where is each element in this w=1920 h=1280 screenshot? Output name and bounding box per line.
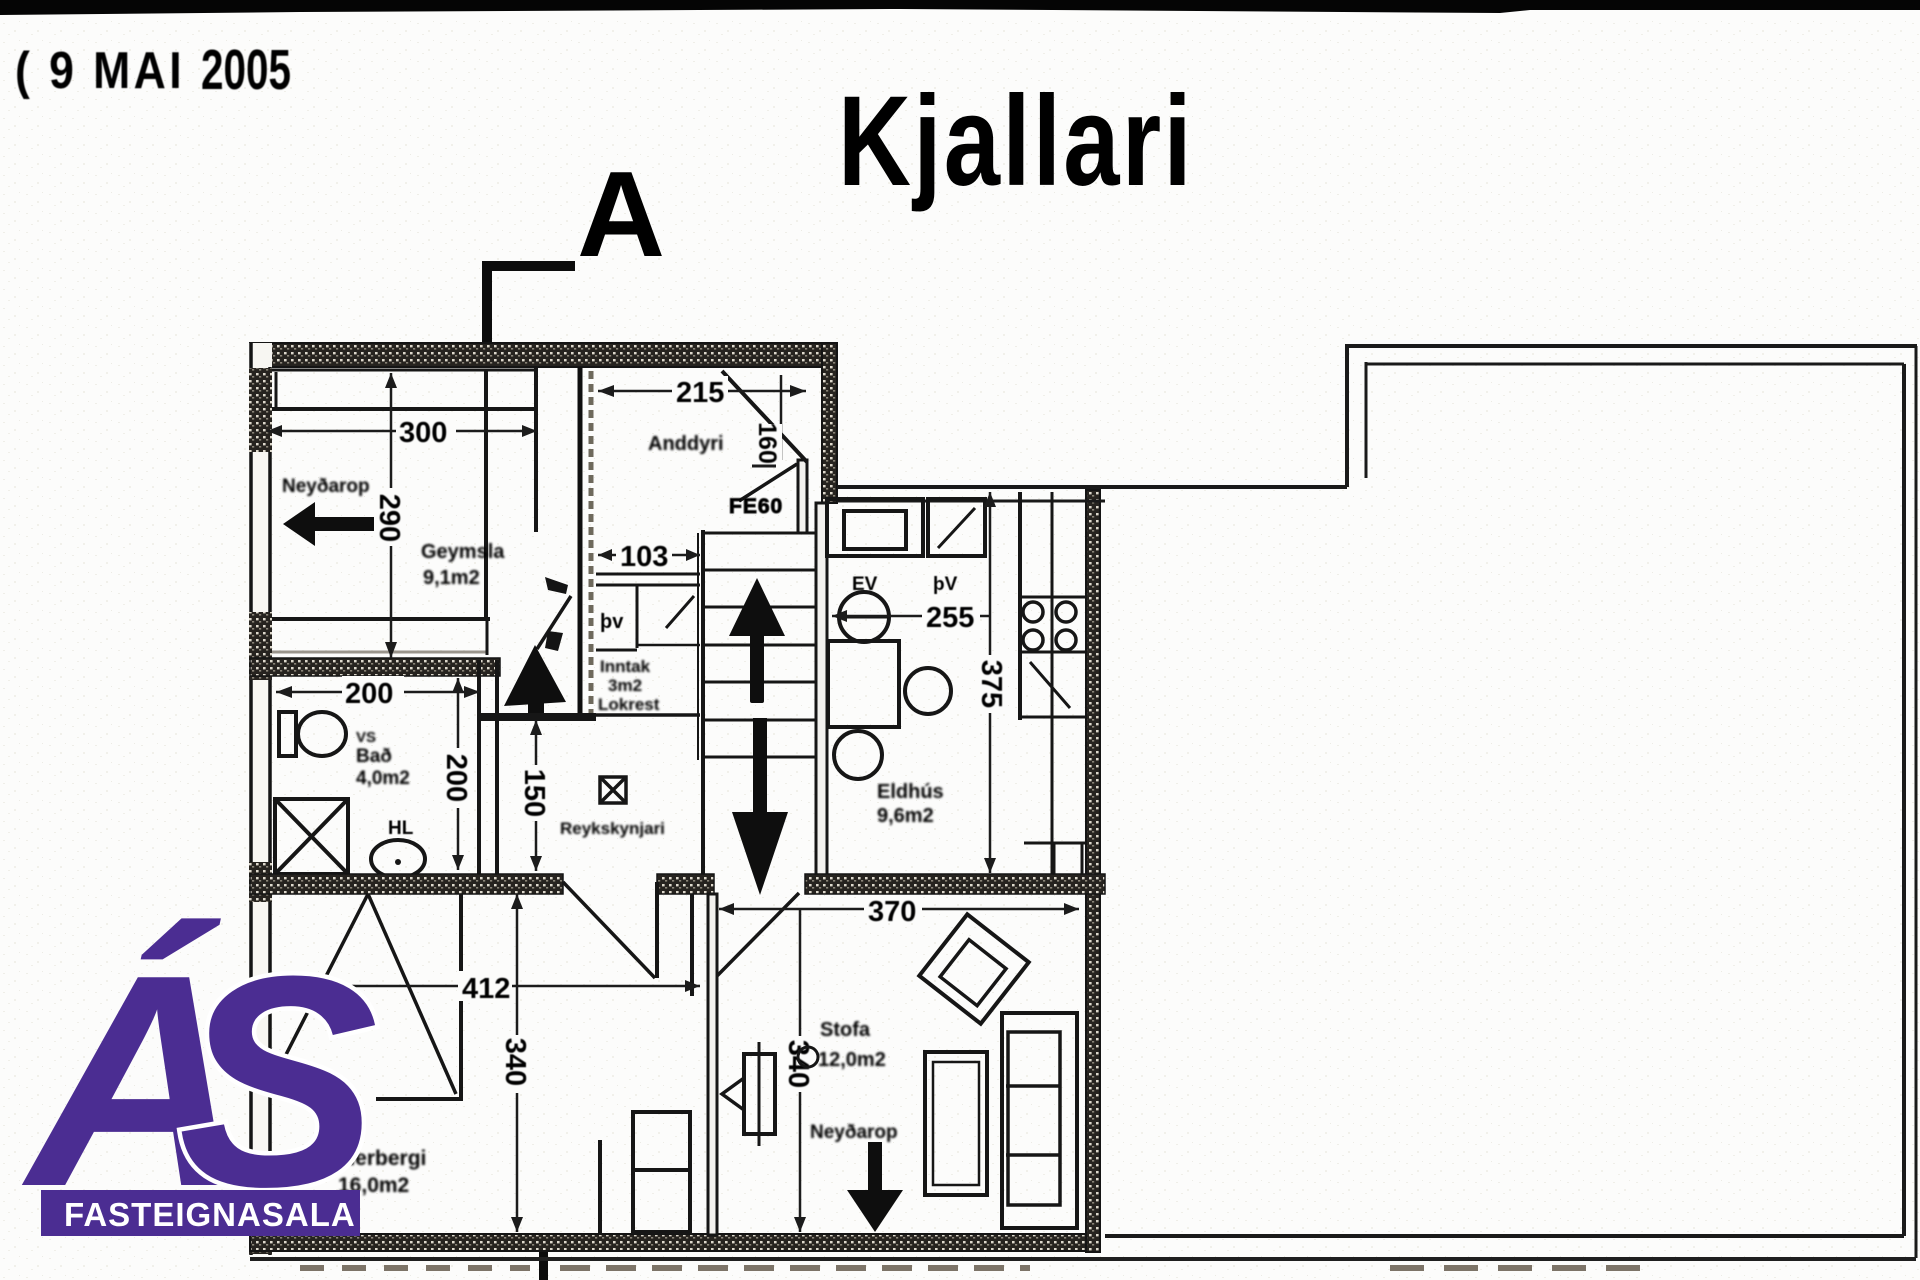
svg-text:375: 375 — [975, 660, 1007, 708]
svg-text:215: 215 — [676, 377, 724, 409]
svg-text:12,0m2: 12,0m2 — [818, 1049, 886, 1071]
svg-text:150: 150 — [518, 769, 550, 817]
svg-text:412: 412 — [462, 973, 510, 1005]
svg-text:Stofa: Stofa — [820, 1019, 871, 1041]
svg-text:340: 340 — [499, 1038, 531, 1086]
svg-text:þv: þv — [600, 611, 624, 633]
svg-text:HL: HL — [388, 818, 414, 839]
svg-text:þV: þV — [933, 574, 958, 595]
svg-text:3m2: 3m2 — [608, 676, 642, 695]
svg-text:Neyðarop: Neyðarop — [810, 1122, 898, 1143]
svg-text:A: A — [577, 146, 665, 282]
svg-text:Neyðarop: Neyðarop — [282, 476, 370, 497]
svg-text:FE60: FE60 — [729, 495, 783, 518]
svg-text:Kjallari: Kjallari — [838, 70, 1194, 213]
svg-text:Reykskynjari: Reykskynjari — [560, 819, 665, 838]
svg-text:Eldhús: Eldhús — [877, 781, 944, 803]
svg-text:( 9 MAI: ( 9 MAI — [15, 42, 185, 100]
svg-text:FASTEIGNASALA: FASTEIGNASALA — [64, 1196, 356, 1233]
svg-text:370: 370 — [868, 896, 916, 928]
svg-text:4,0m2: 4,0m2 — [356, 768, 410, 789]
svg-text:Geymsla: Geymsla — [421, 541, 505, 563]
svg-text:200: 200 — [345, 678, 393, 710]
svg-text:Bað: Bað — [356, 746, 392, 767]
svg-text:9,6m2: 9,6m2 — [877, 805, 934, 827]
svg-text:VS: VS — [356, 729, 376, 746]
svg-text:300: 300 — [399, 417, 447, 449]
svg-text:290: 290 — [373, 494, 405, 542]
svg-text:255: 255 — [926, 602, 974, 634]
svg-text:Anddyri: Anddyri — [648, 433, 724, 455]
svg-text:200: 200 — [440, 754, 472, 802]
svg-text:9,1m2: 9,1m2 — [423, 567, 480, 589]
svg-text:160: 160 — [753, 422, 781, 464]
svg-text:103: 103 — [620, 541, 668, 573]
svg-text:Inntak: Inntak — [600, 657, 651, 676]
svg-text:Lokrest: Lokrest — [598, 695, 660, 714]
svg-text:2005: 2005 — [201, 38, 291, 102]
